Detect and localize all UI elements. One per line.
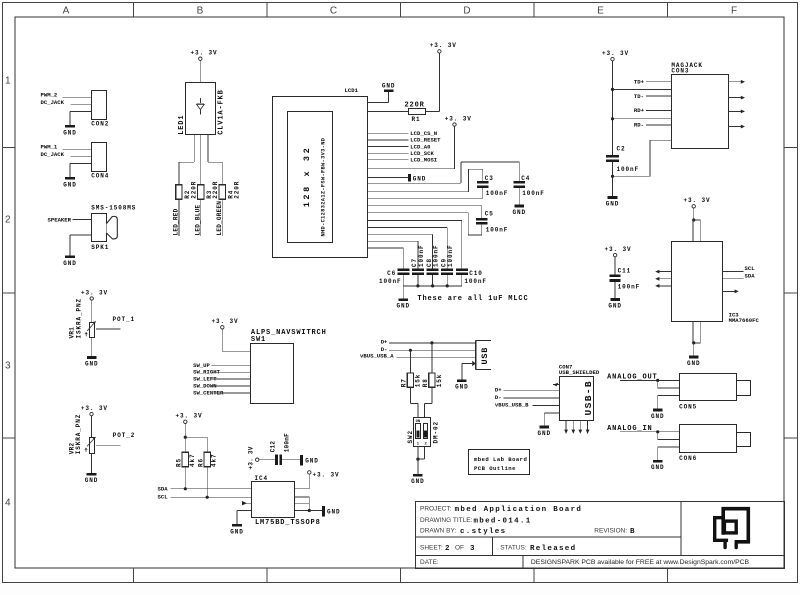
svg-text:c.styles: c.styles xyxy=(460,528,506,536)
svg-text:100nF: 100nF xyxy=(486,190,509,197)
svg-text:GND: GND xyxy=(455,384,469,391)
svg-text:220R: 220R xyxy=(190,181,197,199)
svg-text:100nF: 100nF xyxy=(618,284,641,291)
svg-text:RD-: RD- xyxy=(634,122,644,129)
svg-text:LCD_MOSI: LCD_MOSI xyxy=(410,157,437,164)
svg-text:SHEET:: SHEET: xyxy=(420,544,443,551)
svg-text:100nF: 100nF xyxy=(447,244,454,267)
svg-text:SPEAKER: SPEAKER xyxy=(48,216,72,223)
svg-text:R7: R7 xyxy=(401,378,408,387)
svg-text:DC_JACK: DC_JACK xyxy=(41,151,65,158)
svg-text:D: D xyxy=(463,5,470,16)
svg-text:128 x 32: 128 x 32 xyxy=(302,146,312,208)
svg-text:+3. 3V: +3. 3V xyxy=(684,197,711,204)
svg-text:DC_JACK: DC_JACK xyxy=(41,99,65,106)
svg-text:LED_GREEN: LED_GREEN xyxy=(216,201,223,236)
svg-text:SMS-1508MS: SMS-1508MS xyxy=(91,205,136,212)
svg-text:ISKRA_PNZ: ISKRA_PNZ xyxy=(75,298,82,339)
svg-text:3: 3 xyxy=(470,545,476,553)
svg-text:+3. 3V: +3. 3V xyxy=(313,471,340,478)
svg-text:1: 1 xyxy=(5,76,11,87)
svg-text:+3. 3V: +3. 3V xyxy=(445,115,472,122)
svg-text:POT_2: POT_2 xyxy=(113,432,136,439)
svg-text:NHD-C12832A1Z-FSW-FBW-3V3-ND: NHD-C12832A1Z-FSW-FBW-3V3-ND xyxy=(321,138,327,237)
svg-text:GND: GND xyxy=(382,83,396,90)
svg-text:100nF: 100nF xyxy=(284,433,291,452)
svg-text:100nF: 100nF xyxy=(464,278,487,285)
svg-text:RD+: RD+ xyxy=(634,107,645,114)
svg-text:15k: 15k xyxy=(415,374,422,388)
svg-text:mbed Application Board: mbed Application Board xyxy=(455,506,583,514)
svg-text:B: B xyxy=(197,5,204,16)
svg-text:+3. 3V: +3. 3V xyxy=(248,446,255,469)
svg-text:GND: GND xyxy=(85,477,99,484)
svg-text:GND: GND xyxy=(538,430,552,437)
svg-text:TD-: TD- xyxy=(634,93,644,100)
svg-text:mbed Lab Board: mbed Lab Board xyxy=(474,456,527,463)
svg-text:STATUS:: STATUS: xyxy=(500,544,527,551)
svg-text:+3. 3V: +3. 3V xyxy=(605,246,632,253)
svg-text:LED1: LED1 xyxy=(178,115,186,135)
svg-text:GND: GND xyxy=(327,508,341,515)
svg-text:100nF: 100nF xyxy=(522,190,545,197)
svg-text:GND: GND xyxy=(85,361,99,368)
svg-text:CON2: CON2 xyxy=(91,121,109,128)
svg-text:GND: GND xyxy=(651,464,665,471)
svg-text:PWM_1: PWM_1 xyxy=(41,144,58,151)
svg-text:GND: GND xyxy=(63,129,77,136)
svg-text:GND: GND xyxy=(305,457,319,464)
svg-text:C2: C2 xyxy=(617,146,626,153)
svg-text:ISKRA_PNZ: ISKRA_PNZ xyxy=(75,414,82,455)
svg-text:These are all 1uF MLCC: These are all 1uF MLCC xyxy=(417,295,528,303)
svg-text:GND: GND xyxy=(687,360,701,367)
svg-text:D-: D- xyxy=(495,394,502,401)
svg-text:C4: C4 xyxy=(521,175,530,182)
svg-text:15k: 15k xyxy=(436,374,443,388)
svg-text:220R: 220R xyxy=(212,181,219,199)
svg-text:DRAWN BY:: DRAWN BY: xyxy=(420,527,456,534)
svg-text:3: 3 xyxy=(5,361,11,372)
svg-text:DATE:: DATE: xyxy=(420,559,439,566)
svg-text:220R: 220R xyxy=(405,102,425,110)
svg-text:100nF: 100nF xyxy=(486,226,509,233)
svg-text:C12: C12 xyxy=(269,441,276,453)
svg-text:CLV1A-FKB: CLV1A-FKB xyxy=(218,89,226,134)
svg-text:PWM_2: PWM_2 xyxy=(41,92,58,99)
svg-text:+3. 3V: +3. 3V xyxy=(212,318,239,325)
svg-text:+3. 3V: +3. 3V xyxy=(191,50,218,57)
svg-text:+3. 3V: +3. 3V xyxy=(81,405,108,412)
svg-text:+3. 3V: +3. 3V xyxy=(81,289,108,296)
svg-text:CON6: CON6 xyxy=(679,455,697,462)
svg-text:DRAWING TITLE:: DRAWING TITLE: xyxy=(420,517,473,524)
svg-text:SW1: SW1 xyxy=(251,336,266,344)
svg-text:PCB Outline: PCB Outline xyxy=(474,465,516,472)
svg-text:2: 2 xyxy=(445,545,451,553)
svg-text:R1: R1 xyxy=(412,116,421,123)
svg-text:GND: GND xyxy=(413,175,427,182)
svg-text:GND: GND xyxy=(608,302,622,309)
svg-text:100nF: 100nF xyxy=(617,166,640,173)
svg-text:4: 4 xyxy=(5,498,11,509)
svg-text:+3. 3V: +3. 3V xyxy=(602,50,629,57)
svg-text:C11: C11 xyxy=(618,268,632,275)
svg-text:A: A xyxy=(63,5,70,16)
svg-text:LED_BLUE: LED_BLUE xyxy=(195,205,202,236)
svg-text:GND: GND xyxy=(230,528,244,535)
svg-text:C10: C10 xyxy=(469,270,483,277)
svg-text:R5: R5 xyxy=(176,458,183,467)
svg-text:TD+: TD+ xyxy=(634,79,645,86)
svg-text:LCD1: LCD1 xyxy=(345,87,359,94)
svg-text:SDA: SDA xyxy=(158,485,169,492)
svg-text:GND: GND xyxy=(513,209,527,216)
svg-text:REVISION:: REVISION: xyxy=(594,527,627,534)
svg-text:C6: C6 xyxy=(387,270,396,277)
svg-text:DESIGNSPARK PCB available for: DESIGNSPARK PCB available for FREE at ww… xyxy=(531,559,750,566)
svg-text:SCL: SCL xyxy=(745,265,756,272)
svg-text:OF: OF xyxy=(455,544,464,551)
svg-text:100nF: 100nF xyxy=(418,244,425,267)
svg-text:+3. 3V: +3. 3V xyxy=(430,42,457,49)
svg-text:POT_1: POT_1 xyxy=(113,316,136,323)
svg-text:B: B xyxy=(630,528,636,536)
svg-text:E: E xyxy=(597,5,604,16)
svg-text:220R: 220R xyxy=(234,181,241,199)
svg-text:C: C xyxy=(330,5,337,16)
svg-text:4k7: 4k7 xyxy=(189,453,196,467)
svg-text:R6: R6 xyxy=(197,458,204,467)
svg-text:mbed-014.1: mbed-014.1 xyxy=(474,517,532,525)
svg-text:SCL: SCL xyxy=(158,494,169,501)
svg-text:CON4: CON4 xyxy=(91,173,109,180)
svg-text:SPK1: SPK1 xyxy=(91,244,109,251)
svg-text:2: 2 xyxy=(5,215,11,226)
svg-text:SDA: SDA xyxy=(745,273,756,280)
svg-text:+3. 3V: +3. 3V xyxy=(176,413,203,420)
svg-text:C5: C5 xyxy=(485,210,494,217)
svg-text:Released: Released xyxy=(530,545,576,553)
svg-text:MMA7660FC: MMA7660FC xyxy=(729,317,760,324)
svg-text:GND: GND xyxy=(397,302,411,309)
svg-text:D+: D+ xyxy=(495,387,502,394)
svg-text:GND: GND xyxy=(411,478,425,485)
svg-text:USB: USB xyxy=(480,347,490,365)
svg-text:SW2: SW2 xyxy=(407,430,414,444)
svg-text:D+: D+ xyxy=(381,338,388,345)
svg-text:C3: C3 xyxy=(485,175,494,182)
svg-text:GND: GND xyxy=(606,201,620,208)
svg-text:100nF: 100nF xyxy=(433,244,440,267)
svg-text:LM75BD_TSSOP8: LM75BD_TSSOP8 xyxy=(255,519,321,527)
svg-text:USB-B: USB-B xyxy=(583,380,594,416)
svg-text:PROJECT:: PROJECT: xyxy=(420,506,452,513)
svg-text:vBUS_USB_B: vBUS_USB_B xyxy=(495,401,529,408)
svg-text:IC4: IC4 xyxy=(255,475,269,482)
svg-text:vBUS_USB_A: vBUS_USB_A xyxy=(360,353,394,360)
svg-text:USB_SHIELDED: USB_SHIELDED xyxy=(559,369,600,376)
svg-text:4k7: 4k7 xyxy=(211,453,218,467)
svg-text:CON3: CON3 xyxy=(671,68,689,75)
svg-text:GND: GND xyxy=(63,260,77,267)
svg-text:CON5: CON5 xyxy=(679,404,697,411)
svg-text:F: F xyxy=(731,5,737,16)
svg-text:LED_RED: LED_RED xyxy=(173,208,180,235)
svg-text:DM-02: DM-02 xyxy=(433,421,440,444)
svg-text:R8: R8 xyxy=(422,378,429,387)
svg-text:GND: GND xyxy=(63,181,77,188)
svg-text:100nF: 100nF xyxy=(379,278,402,285)
svg-text:GND: GND xyxy=(651,413,665,420)
